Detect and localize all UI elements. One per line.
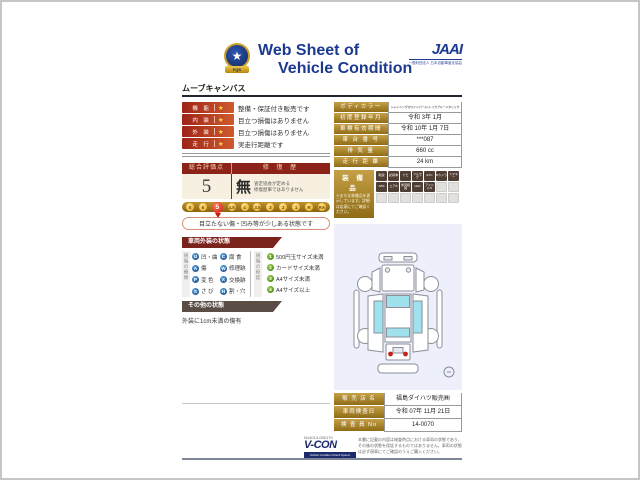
damage-type-text: 割・穴	[229, 287, 246, 295]
car-unfolded-diagram	[334, 224, 462, 390]
side-window-left	[374, 301, 383, 333]
emblem-ribbon: FQS	[225, 66, 249, 73]
equipment-badge: 取説	[376, 171, 387, 181]
info-value: 24 km	[388, 157, 462, 168]
grade-scale-item: 3	[266, 203, 274, 211]
jaai-logo: JAAI 一般財団法人 日本自動車査定協会	[409, 41, 462, 66]
equipment-badge-grid: 取説 記録簿 ナビ フルセグ ETC Bカメラ スマキー ABS	[374, 170, 462, 218]
damage-degree-text: 500円玉サイズ未満	[276, 253, 324, 261]
info-row: 車検有効期間 令和 10年 1月 7日	[334, 124, 462, 135]
info-label: 初度登録年月	[334, 113, 388, 124]
damage-type-code-icon: X	[220, 276, 227, 283]
damage-type-item: A 傷	[192, 263, 220, 274]
grade-scale-item: R	[305, 203, 313, 211]
sales-label: 販 売 店 名	[334, 393, 384, 406]
rear-window	[387, 328, 410, 337]
rating-row: 機 能 ★ 整備・保証付き販売です	[182, 102, 330, 113]
star-icon: ★	[218, 104, 224, 112]
grade-scale-item: 6	[199, 203, 207, 211]
damage-degree-code-icon: 1	[267, 253, 274, 260]
front-grille-left	[384, 257, 392, 261]
equipment-badge: フルセグ	[412, 171, 423, 181]
rating-label-box: 走 行 ★	[182, 138, 234, 149]
rear-bumper	[378, 364, 418, 373]
damage-degree-label: 損傷の程度	[254, 251, 262, 297]
other-condition-note: 外装に1cm未満の傷有	[182, 316, 330, 325]
repair-history-header: 修 復 歴	[232, 163, 330, 174]
damage-degree-text: A4サイズ未満	[276, 275, 310, 283]
windshield	[387, 296, 410, 308]
damage-type-item: P 変 色	[192, 274, 220, 285]
rating-text: 目立つ損傷はありません	[238, 115, 309, 125]
damage-type-item: C 腐 食	[220, 251, 248, 262]
damage-type-item: W 修理跡	[220, 263, 248, 274]
taillamp-right-icon	[403, 352, 408, 357]
equipment-badge: 記録簿	[388, 171, 399, 181]
rating-category: 外 装	[192, 128, 211, 136]
info-row: 初度登録年月 令和 3年 1月	[334, 113, 462, 124]
rating-text: 整備・保証付き販売です	[238, 103, 310, 113]
rating-text: 目立つ損傷はありません	[238, 127, 309, 137]
damage-type-text: 傷	[201, 264, 207, 272]
equipment-badge: LED	[412, 182, 423, 192]
equipment-badge	[436, 182, 447, 192]
title-line1: Web Sheet of	[258, 42, 412, 60]
equipment-badge	[436, 193, 447, 203]
taillamp-left-icon	[388, 352, 393, 357]
vehicle-name: ムーブキャンバス	[182, 83, 246, 94]
equipment-badge	[424, 193, 435, 203]
equipment-badge: ナビ	[400, 171, 411, 181]
repair-history: 無 査定協会が定める 修復歴車ではありません	[232, 174, 330, 199]
rating-row: 内 装 ★ 目立つ損傷はありません	[182, 114, 330, 125]
left-column-divider	[182, 403, 330, 404]
info-value: 令和 3年 1月	[388, 113, 462, 124]
damage-type-item: S さ び	[192, 286, 220, 297]
equipment-section: 装 備 品 ※おもな装備品を表示しています。詳細は店頭にてご確認ください。 取説…	[334, 170, 462, 218]
damage-type-code-icon: A	[192, 265, 199, 272]
equipment-title: 装 備 品	[336, 172, 372, 192]
double-divider	[182, 153, 330, 157]
info-label: 車検有効期間	[334, 124, 388, 135]
info-row: ボディカラー シャイニングホワイトパール×レイクブルーメタリック	[334, 102, 462, 113]
damage-type-text: 凹・曲	[201, 253, 218, 261]
damage-type-code-icon: H	[220, 288, 227, 295]
equipment-badge	[448, 182, 459, 192]
evaluation-body: 5 無 査定協会が定める 修復歴車ではありません	[182, 174, 330, 199]
jaai-subtitle: 一般財団法人 日本自動車査定協会	[409, 59, 462, 66]
star-icon: ★	[218, 140, 224, 148]
license-plate	[393, 348, 403, 354]
equipment-badge: ETC	[424, 171, 435, 181]
equipment-badge: ABS	[376, 182, 387, 192]
info-value: 660 cc	[388, 146, 462, 157]
wheel-front-right-icon	[424, 277, 439, 292]
damage-type-code-icon: W	[220, 265, 227, 272]
rating-label-box: 機 能 ★	[182, 102, 234, 113]
grade-scale-item: RA	[318, 203, 326, 211]
sales-row: 販 売 店 名 福島ダイハツ販売㈱	[334, 393, 462, 406]
damage-type-text: 交換跡	[229, 276, 246, 284]
repair-history-note: 査定協会が定める 修復歴車ではありません	[254, 181, 303, 193]
vehicle-condition-sheet: ★ FQS Web Sheet of Vehicle Condition JAA…	[182, 38, 462, 470]
info-row: 車 台 番 号 ***087	[334, 135, 462, 146]
damage-type-item: X 交換跡	[220, 274, 248, 285]
exterior-section-title: 車両外装の状態	[182, 237, 282, 248]
sales-value: 令和 07年 11月 21日	[384, 406, 462, 419]
other-section-title: その他の状態	[182, 301, 282, 312]
equipment-note: ※おもな装備品を表示しています。詳細は店頭にてご確認ください。	[336, 194, 372, 215]
damage-degree-list: 1 500円玉サイズ未満 2 カードサイズ未満 3 A4サイズ未満	[264, 251, 330, 297]
grade-scale: S 6 5 4.5 4 3.5 3 2 1 R	[182, 202, 330, 212]
equipment-badge	[376, 193, 387, 203]
info-label: 走 行 距 離	[334, 157, 388, 168]
sales-info-table: 販 売 店 名 福島ダイハツ販売㈱ 車両検査日 令和 07年 11月 21日 検…	[334, 393, 462, 432]
rating-divider	[214, 128, 215, 135]
grade-scale-item: 3.5	[253, 203, 261, 211]
damage-degree-item: 4 A4サイズ以上	[267, 284, 330, 295]
sales-value: 福島ダイハツ販売㈱	[384, 393, 462, 406]
rating-divider	[214, 104, 215, 111]
grade-scale-item: 4	[241, 203, 249, 211]
damage-type-text: さ び	[201, 287, 214, 295]
score-header: 総合評価点	[182, 163, 232, 174]
equipment-badge	[400, 193, 411, 203]
damage-type-item: H 割・穴	[220, 286, 248, 297]
evaluation-header: 総合評価点 修 復 歴	[182, 163, 330, 174]
info-row: 排 気 量 660 cc	[334, 146, 462, 157]
damage-degree-code-icon: 2	[267, 264, 274, 271]
repair-history-value: 無	[236, 176, 251, 197]
damage-type-text: 修理跡	[229, 264, 246, 272]
damage-type-text: 変 色	[201, 276, 214, 284]
grade-scale-item: 5	[212, 202, 223, 213]
rating-category: 走 行	[192, 140, 211, 148]
page-title: Web Sheet of Vehicle Condition	[258, 42, 412, 77]
damage-type-code-icon: S	[192, 288, 199, 295]
side-window-right	[413, 301, 422, 333]
rating-text: 実走行距離です	[238, 139, 284, 149]
repair-history-note-line1: 査定協会が定める	[254, 181, 290, 186]
front-grille-right	[404, 257, 412, 261]
star-icon: ★	[218, 116, 224, 124]
equipment-badge	[448, 193, 459, 203]
bottom-divider	[182, 458, 462, 460]
right-column: ボディカラー シャイニングホワイトパール×レイクブルーメタリック 初度登録年月 …	[334, 102, 462, 432]
damage-type-label: 損傷の種類	[182, 251, 190, 297]
front-fender-right	[416, 268, 424, 292]
grade-scale-item: S	[186, 203, 194, 211]
headlight-left-icon	[385, 268, 389, 272]
sales-row: 車両検査日 令和 07年 11月 21日	[334, 406, 462, 419]
equipment-badge: Bカメラ	[436, 171, 447, 181]
sales-label: 検 査 員 No	[334, 419, 384, 432]
damage-type-code-icon: U	[192, 253, 199, 260]
damage-type-code-icon: P	[192, 276, 199, 283]
rating-row: 走 行 ★ 実走行距離です	[182, 138, 330, 149]
web-sheet-page: ★ FQS Web Sheet of Vehicle Condition JAA…	[0, 0, 640, 480]
sales-value: 14-0070	[384, 419, 462, 432]
equipment-badge	[388, 193, 399, 203]
vehicle-info-table: ボディカラー シャイニングホワイトパール×レイクブルーメタリック 初度登録年月 …	[334, 102, 462, 168]
grade-scale-item: 4.5	[228, 203, 236, 211]
info-label: 車 台 番 号	[334, 135, 388, 146]
fqs-emblem-icon: ★ FQS	[224, 43, 252, 71]
equipment-title-box: 装 備 品 ※おもな装備品を表示しています。詳細は店頭にてご確認ください。	[334, 170, 374, 218]
overall-score: 5	[182, 174, 232, 199]
damage-degree-item: 2 カードサイズ未満	[267, 262, 330, 273]
header-divider	[182, 95, 462, 97]
rating-category: 内 装	[192, 116, 211, 124]
left-column: 機 能 ★ 整備・保証付き販売です 内 装 ★ 目立つ損傷はありませ	[182, 102, 330, 325]
equipment-badge: 衝突軽減	[400, 182, 411, 192]
info-label: ボディカラー	[334, 102, 388, 113]
damage-legend: 損傷の種類 U 凹・曲 C 腐 食	[182, 251, 330, 297]
rating-divider	[214, 140, 215, 147]
damage-type-text: 腐 食	[229, 253, 242, 261]
rating-row: 外 装 ★ 目立つ損傷はありません	[182, 126, 330, 137]
equipment-badge: エアB	[388, 182, 399, 192]
wheel-front-left-icon	[358, 277, 373, 292]
equipment-badge	[412, 193, 423, 203]
info-label: 排 気 量	[334, 146, 388, 157]
title-line2: Vehicle Condition	[278, 60, 412, 78]
rating-label-box: 外 装 ★	[182, 126, 234, 137]
star-icon: ★	[218, 128, 224, 136]
info-row: 走 行 距 離 24 km	[334, 157, 462, 168]
damage-degree-text: カードサイズ未満	[276, 264, 320, 272]
rating-label-box: 内 装 ★	[182, 114, 234, 125]
headlight-right-icon	[406, 268, 410, 272]
damage-type-list: U 凹・曲 C 腐 食 A 傷	[192, 251, 251, 297]
damage-degree-item: 3 A4サイズ未満	[267, 273, 330, 284]
grade-note: 目立たない傷・凹み等が少しある状態です	[182, 217, 330, 230]
rating-list: 機 能 ★ 整備・保証付き販売です 内 装 ★ 目立つ損傷はありませ	[182, 102, 330, 149]
info-value: シャイニングホワイトパール×レイクブルーメタリック	[388, 102, 462, 113]
info-value: ***087	[388, 135, 462, 146]
info-value: 令和 10年 1月 7日	[388, 124, 462, 135]
disclaimer-text: 本書に記載の内容は検査時点における車両の状態であり、その後の状態を保証するもので…	[358, 437, 462, 455]
equipment-badge: スマキー	[448, 171, 459, 181]
grade-scale-item: 2	[279, 203, 287, 211]
grade-scale-item: 1	[292, 203, 300, 211]
sales-row: 検 査 員 No 14-0070	[334, 419, 462, 432]
jaai-logo-text: JAAI	[409, 41, 462, 58]
front-fender-left	[372, 268, 380, 292]
rating-category: 機 能	[192, 104, 211, 112]
car-damage-diagram	[334, 224, 462, 390]
damage-type-code-icon: C	[220, 253, 227, 260]
repair-history-note-line2: 修復歴車ではありません	[254, 187, 303, 192]
sales-label: 車両検査日	[334, 406, 384, 419]
rating-divider	[214, 116, 215, 123]
damage-degree-text: A4サイズ以上	[276, 286, 310, 294]
damage-degree-code-icon: 3	[267, 275, 274, 282]
damage-degree-item: 1 500円玉サイズ未満	[267, 251, 330, 262]
equipment-badge: アイドルS	[424, 182, 435, 192]
damage-degree-code-icon: 4	[267, 286, 274, 293]
damage-type-item: U 凹・曲	[192, 251, 220, 262]
